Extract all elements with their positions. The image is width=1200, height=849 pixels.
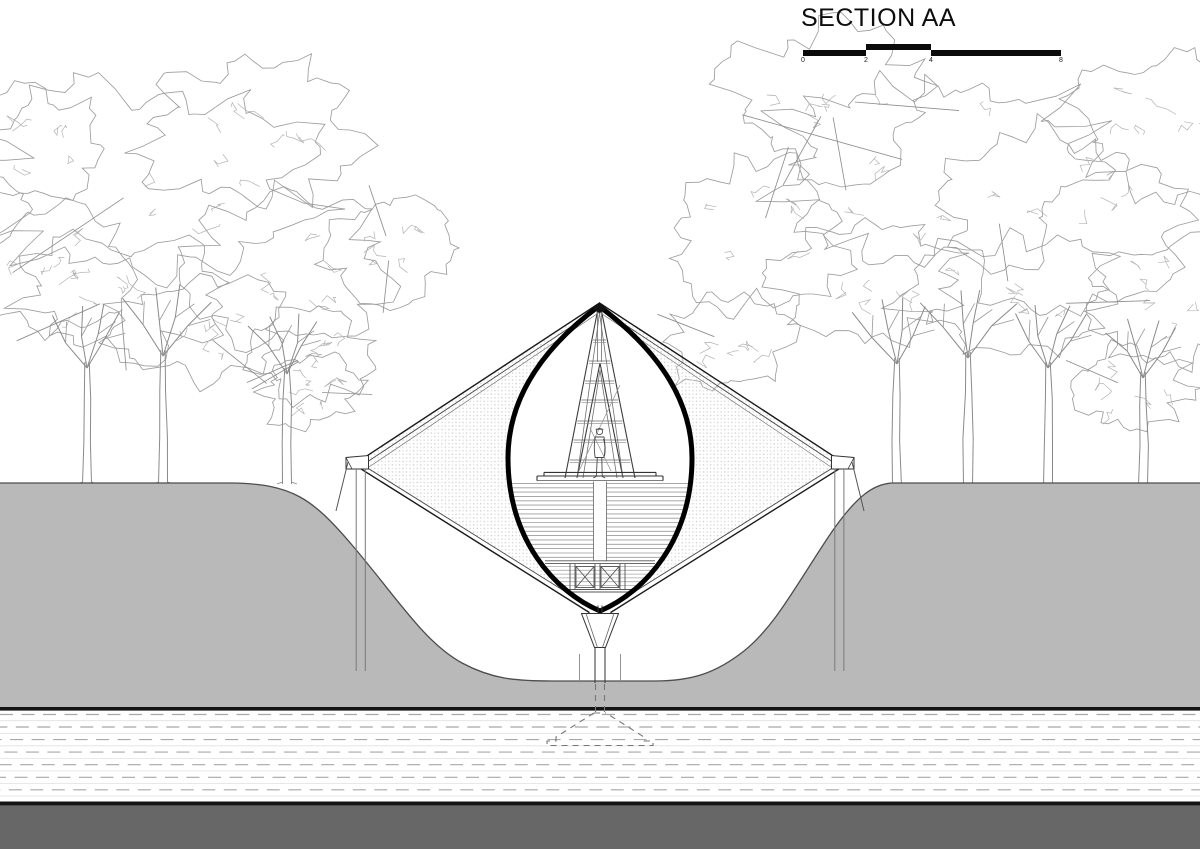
- branch: [87, 304, 104, 368]
- base-node: [580, 606, 621, 684]
- foliage-scribble: [1079, 210, 1087, 224]
- foliage-scribble: [296, 134, 326, 151]
- branch: [897, 298, 903, 364]
- trunk-edge: [83, 362, 85, 484]
- foliage-scribble: [270, 293, 279, 300]
- foliage-scribble: [1188, 302, 1199, 311]
- canopy-outline: [125, 54, 379, 209]
- foliage-scribble: [910, 291, 919, 312]
- canopy-outline: [315, 195, 460, 311]
- foliage-scribble: [415, 227, 425, 234]
- twig-line: [833, 117, 846, 190]
- foliage-scribble: [240, 180, 260, 187]
- foliage-scribble: [334, 333, 345, 346]
- scale-bar-segment: [866, 44, 931, 50]
- twig-line: [855, 102, 959, 111]
- foliage-scribble: [754, 349, 772, 363]
- foliage-scribble: [79, 296, 98, 305]
- foliage-scribble: [727, 351, 739, 356]
- funnel: [582, 614, 619, 648]
- foliage-scribble: [231, 103, 245, 119]
- foliage-scribble: [1095, 377, 1100, 390]
- foliage-scribble: [1103, 409, 1113, 424]
- foliage-scribble: [309, 300, 329, 309]
- foliage-scribble: [145, 173, 155, 187]
- scale-bar-segment: [931, 50, 1061, 56]
- canopy-outline: [4, 229, 229, 366]
- foliage-scribble: [324, 261, 342, 273]
- branch: [1128, 319, 1144, 378]
- foliage-scribble: [312, 357, 318, 368]
- branch-twig: [159, 300, 170, 321]
- foliage-scribble: [305, 234, 320, 241]
- trunk-edge: [1139, 372, 1141, 485]
- foliage-scribble: [238, 103, 264, 118]
- foliage-scribble: [724, 252, 733, 261]
- foliage-scribble: [292, 403, 305, 416]
- twig-line: [999, 224, 1008, 282]
- foliage-scribble: [214, 154, 228, 167]
- foliage-scribble: [271, 135, 285, 148]
- foliage-scribble: [62, 126, 67, 138]
- trunk-edge: [165, 350, 167, 484]
- root-flare: [292, 482, 298, 484]
- foliage-scribble: [945, 268, 959, 275]
- foliage-scribble: [697, 355, 715, 368]
- trunk-edge: [892, 358, 895, 486]
- branch: [1143, 321, 1159, 379]
- branch-twig: [872, 315, 873, 337]
- branch-twig: [66, 322, 67, 343]
- foliage-scribble: [1110, 124, 1128, 134]
- foliage-scribble: [822, 104, 830, 111]
- trunk-edge: [970, 352, 973, 486]
- canopy-outline: [669, 153, 857, 320]
- substrate-top-line: [0, 802, 1200, 806]
- foliage-scribble: [322, 296, 336, 303]
- twig-line: [13, 198, 124, 273]
- twig-line: [369, 185, 386, 236]
- grade-line: [0, 707, 1200, 711]
- substrate-hatch: [0, 707, 1200, 849]
- foliage-scribble: [869, 156, 879, 164]
- root-flare: [277, 482, 283, 484]
- foliage-scribble: [791, 206, 804, 219]
- foliage-scribble: [67, 156, 73, 164]
- foliage-scribble: [117, 277, 128, 289]
- foliage-scribble: [289, 389, 313, 395]
- foliage-scribble: [937, 215, 951, 220]
- foliage-scribble: [1135, 125, 1145, 134]
- foliage-scribble: [118, 286, 125, 293]
- foliage-scribble: [230, 314, 244, 323]
- foliage-scribble: [786, 199, 800, 210]
- foliage-scribble: [208, 118, 221, 133]
- branch-twig: [1127, 331, 1128, 351]
- branch: [82, 306, 88, 368]
- foliage-scribble: [1131, 261, 1141, 270]
- foliage-scribble: [1055, 309, 1065, 317]
- foliage-scribble: [836, 282, 846, 299]
- trunk-edge: [963, 352, 966, 486]
- deck-center-gap: [594, 482, 607, 561]
- foliage-scribble: [14, 165, 31, 175]
- trunk-edge: [899, 358, 901, 486]
- branch: [1048, 314, 1086, 368]
- branch-twig: [963, 303, 974, 324]
- foliage-scribble: [700, 342, 719, 353]
- twig-line: [17, 304, 100, 341]
- canopy-outline: [0, 81, 104, 201]
- canopy-outline: [935, 114, 1198, 317]
- twig-line: [383, 261, 389, 313]
- foliage-scribble: [844, 207, 864, 215]
- twig-line: [742, 115, 902, 160]
- twig-line: [322, 393, 372, 395]
- anchor-line: [336, 462, 348, 511]
- foliage-scribble: [293, 369, 306, 378]
- twig-line: [1066, 360, 1118, 382]
- foliage-scribble: [1114, 88, 1132, 94]
- branch-twig: [943, 304, 944, 328]
- foliage-scribble: [1027, 209, 1047, 217]
- branch: [123, 298, 164, 356]
- foliage-scribble: [1101, 197, 1118, 211]
- canopy-outline: [882, 228, 1121, 358]
- foliage-scribble: [41, 266, 52, 275]
- foliage-scribble: [1158, 256, 1169, 269]
- foliage-scribble: [306, 381, 311, 386]
- branch-twig: [143, 301, 144, 324]
- foliage-scribble: [1162, 323, 1177, 340]
- branch-twig: [282, 325, 292, 343]
- foliage-scribble: [859, 300, 871, 315]
- foliage-scribble: [218, 353, 223, 360]
- foliage-scribble: [896, 289, 912, 302]
- scale-bar: 0 2 4 8: [803, 44, 1065, 68]
- drawing-svg: [0, 0, 1200, 849]
- scale-tick-label: 2: [861, 57, 871, 64]
- foliage-scribble: [1006, 287, 1017, 294]
- foliage-scribble: [54, 125, 62, 135]
- foliage-scribble: [54, 258, 65, 268]
- trunk-edge: [89, 362, 91, 484]
- branch-twig: [269, 326, 270, 346]
- branch-twig: [1135, 329, 1145, 346]
- scale-tick-label: 4: [926, 57, 936, 64]
- canopy-outline: [762, 218, 969, 348]
- foliage-scribble: [1108, 361, 1118, 378]
- foliage-scribble: [1099, 383, 1112, 400]
- trunk-edge: [1050, 362, 1052, 486]
- trees-left: [0, 54, 459, 484]
- branch-twig: [298, 331, 315, 343]
- title-block: SECTION AA: [801, 4, 1101, 33]
- branch-twig: [913, 330, 935, 336]
- trunk-edge: [1044, 362, 1046, 486]
- foliage-scribble: [705, 204, 717, 210]
- foliage-scribble: [192, 224, 220, 234]
- foliage-scribble: [806, 104, 824, 111]
- scale-tick-label: 8: [1056, 57, 1066, 64]
- trunk-edge: [289, 368, 291, 484]
- foliage-scribble: [1135, 396, 1152, 409]
- branch-twig: [973, 309, 992, 323]
- foliage-scribble: [1178, 122, 1192, 132]
- canopy-outline: [709, 13, 938, 187]
- foliage-scribble: [149, 209, 156, 216]
- foliage-scribble: [1121, 185, 1132, 196]
- trunk-edge: [282, 368, 285, 484]
- scale-tick-label: 0: [798, 57, 808, 64]
- foliage-scribble: [399, 259, 408, 273]
- drawing-title: SECTION AA: [801, 4, 1101, 33]
- branch-twig: [1038, 317, 1048, 336]
- foliage-scribble: [320, 400, 323, 409]
- section-drawing-sheet: SECTION AA 0 2 4 8: [0, 0, 1200, 849]
- foliage-scribble: [988, 191, 1001, 197]
- foliage-scribble: [767, 95, 780, 105]
- foliage-scribble: [751, 186, 770, 197]
- scale-bar-segment: [803, 50, 866, 56]
- canopy-outline: [1071, 340, 1200, 432]
- trunk-edge: [1145, 372, 1148, 485]
- foliage-scribble: [311, 343, 331, 354]
- branch-twig: [888, 311, 899, 331]
- foliage-scribble: [1145, 98, 1176, 115]
- branch: [248, 326, 287, 374]
- foliage-scribble: [738, 344, 753, 351]
- substrate-strip: [0, 806, 1200, 849]
- foliage-scribble: [1018, 308, 1028, 313]
- foliage-scribble: [980, 102, 990, 116]
- foliage-scribble: [875, 95, 888, 105]
- trunk-edge: [159, 350, 161, 484]
- foliage-scribble: [1140, 279, 1148, 290]
- twig-line: [1066, 301, 1150, 304]
- branch: [1016, 314, 1049, 369]
- footing-outline: [547, 713, 653, 746]
- foliage-scribble: [863, 281, 872, 292]
- branch-twig: [1029, 320, 1030, 342]
- hatch-rows: [0, 715, 1200, 797]
- branch-twig: [175, 304, 194, 318]
- foliage-scribble: [336, 378, 347, 385]
